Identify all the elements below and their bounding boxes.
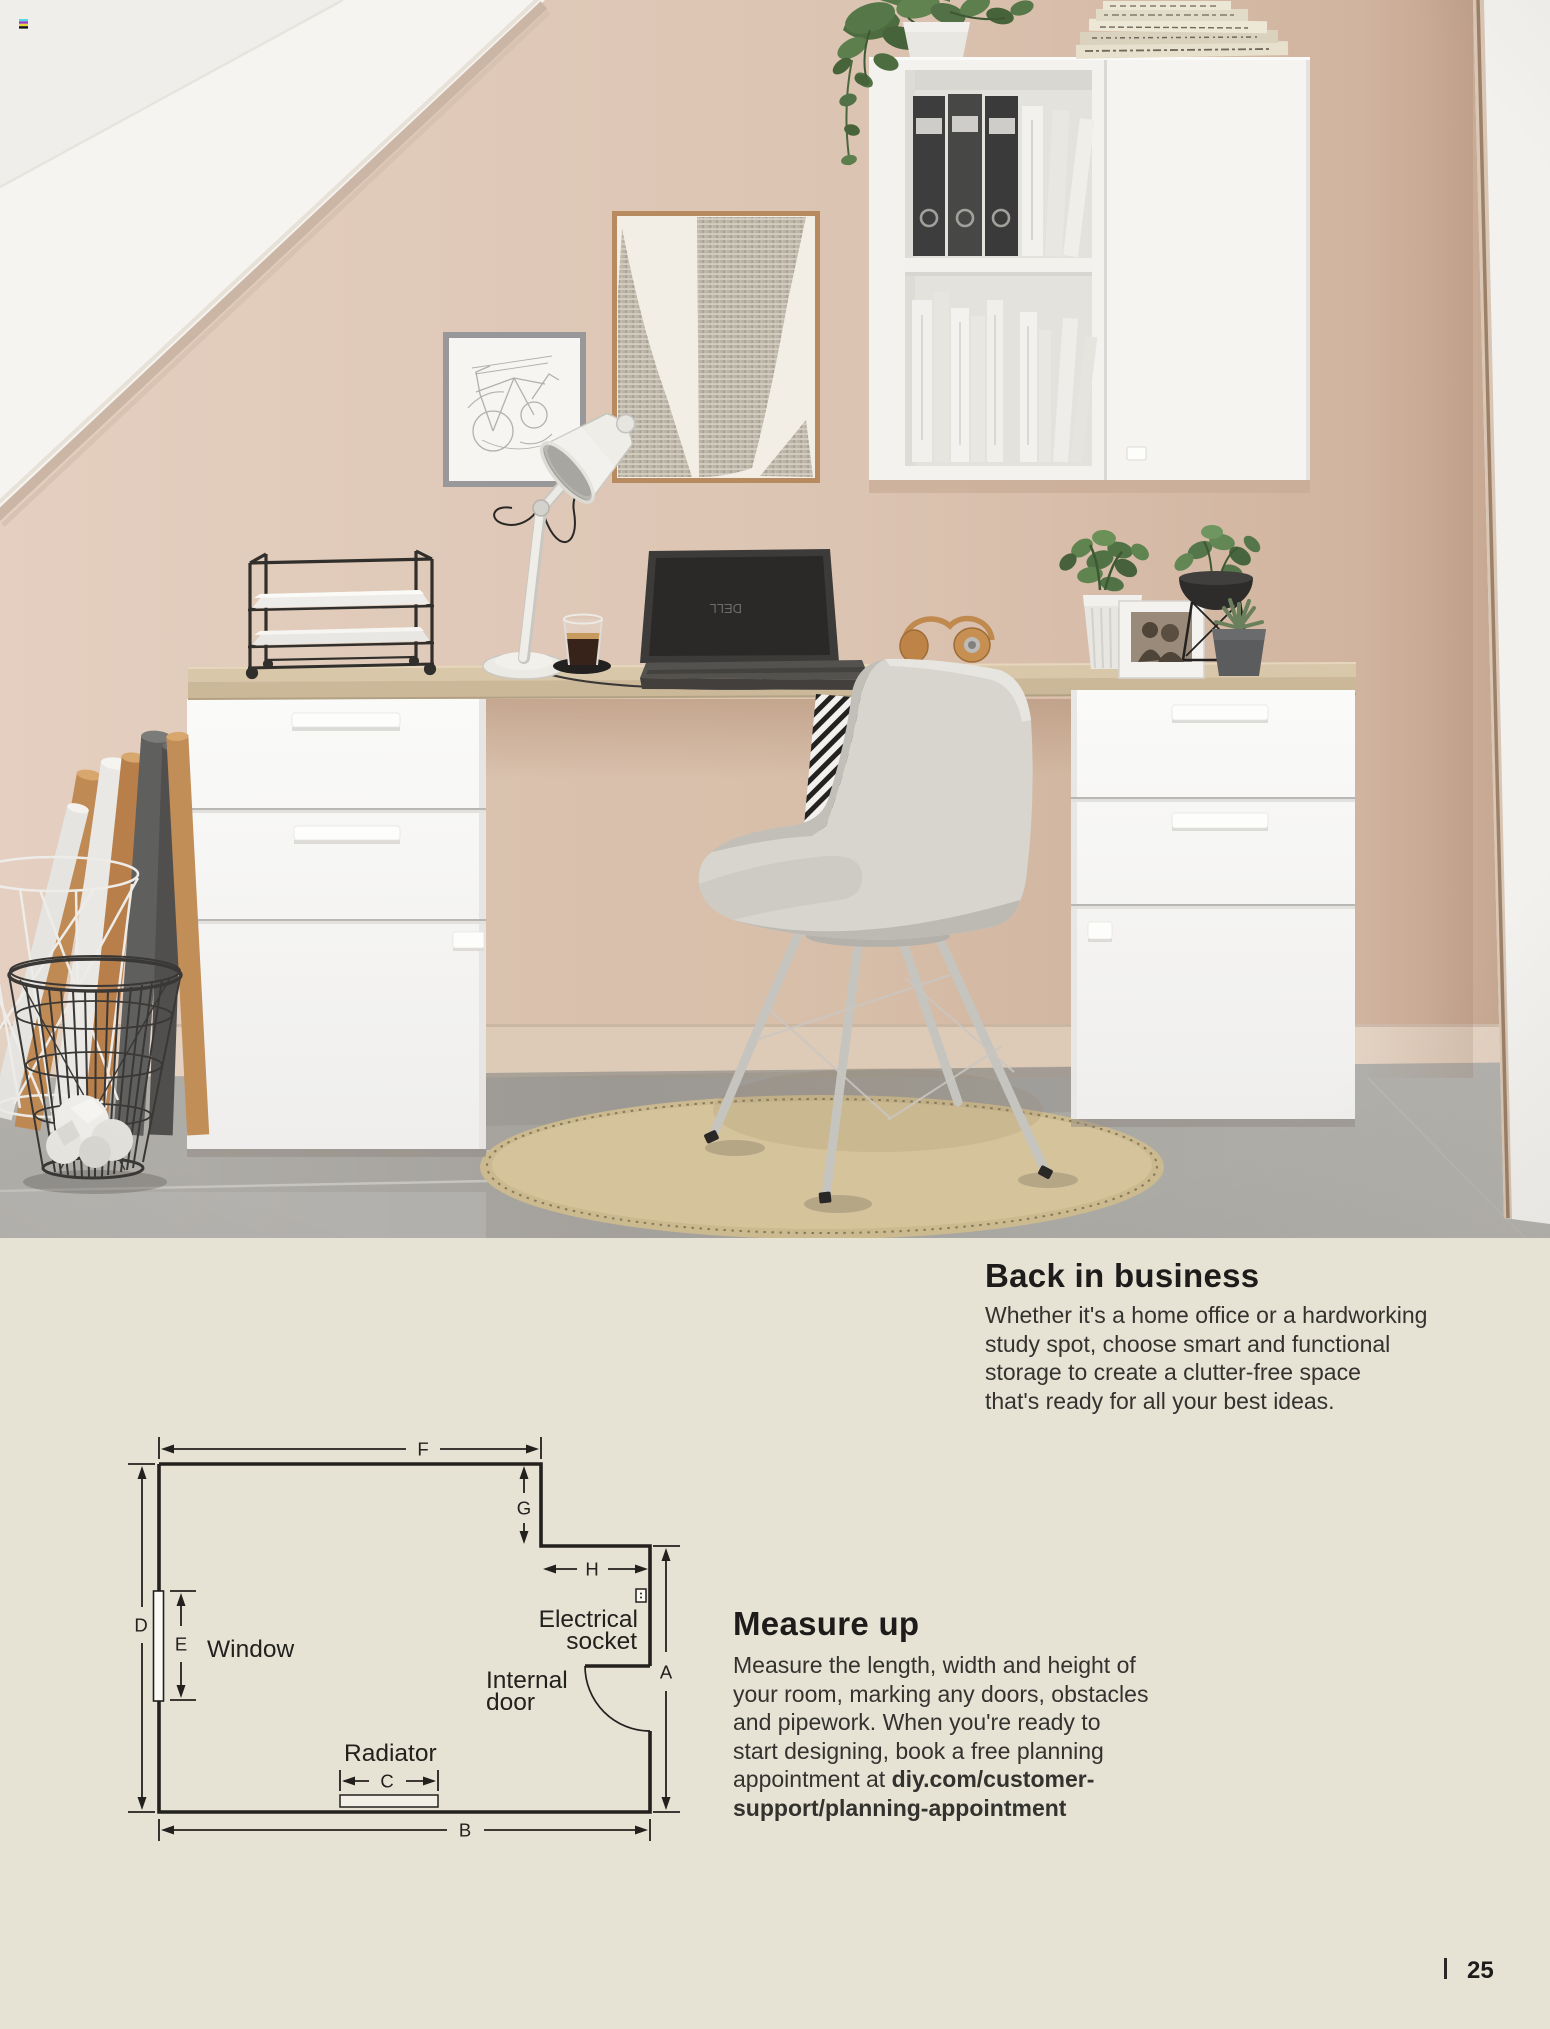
svg-text:A: A <box>660 1662 673 1683</box>
svg-text:B: B <box>459 1820 471 1841</box>
svg-text:door: door <box>486 1689 535 1716</box>
svg-text:C: C <box>380 1771 393 1792</box>
svg-text:G: G <box>517 1498 531 1519</box>
svg-text:Radiator: Radiator <box>344 1740 437 1767</box>
svg-text:E: E <box>175 1634 187 1655</box>
svg-text:H: H <box>585 1559 598 1580</box>
svg-text:Window: Window <box>207 1636 294 1663</box>
svg-text:D: D <box>134 1615 147 1636</box>
svg-text:socket: socket <box>566 1628 637 1655</box>
svg-text:F: F <box>417 1439 428 1460</box>
